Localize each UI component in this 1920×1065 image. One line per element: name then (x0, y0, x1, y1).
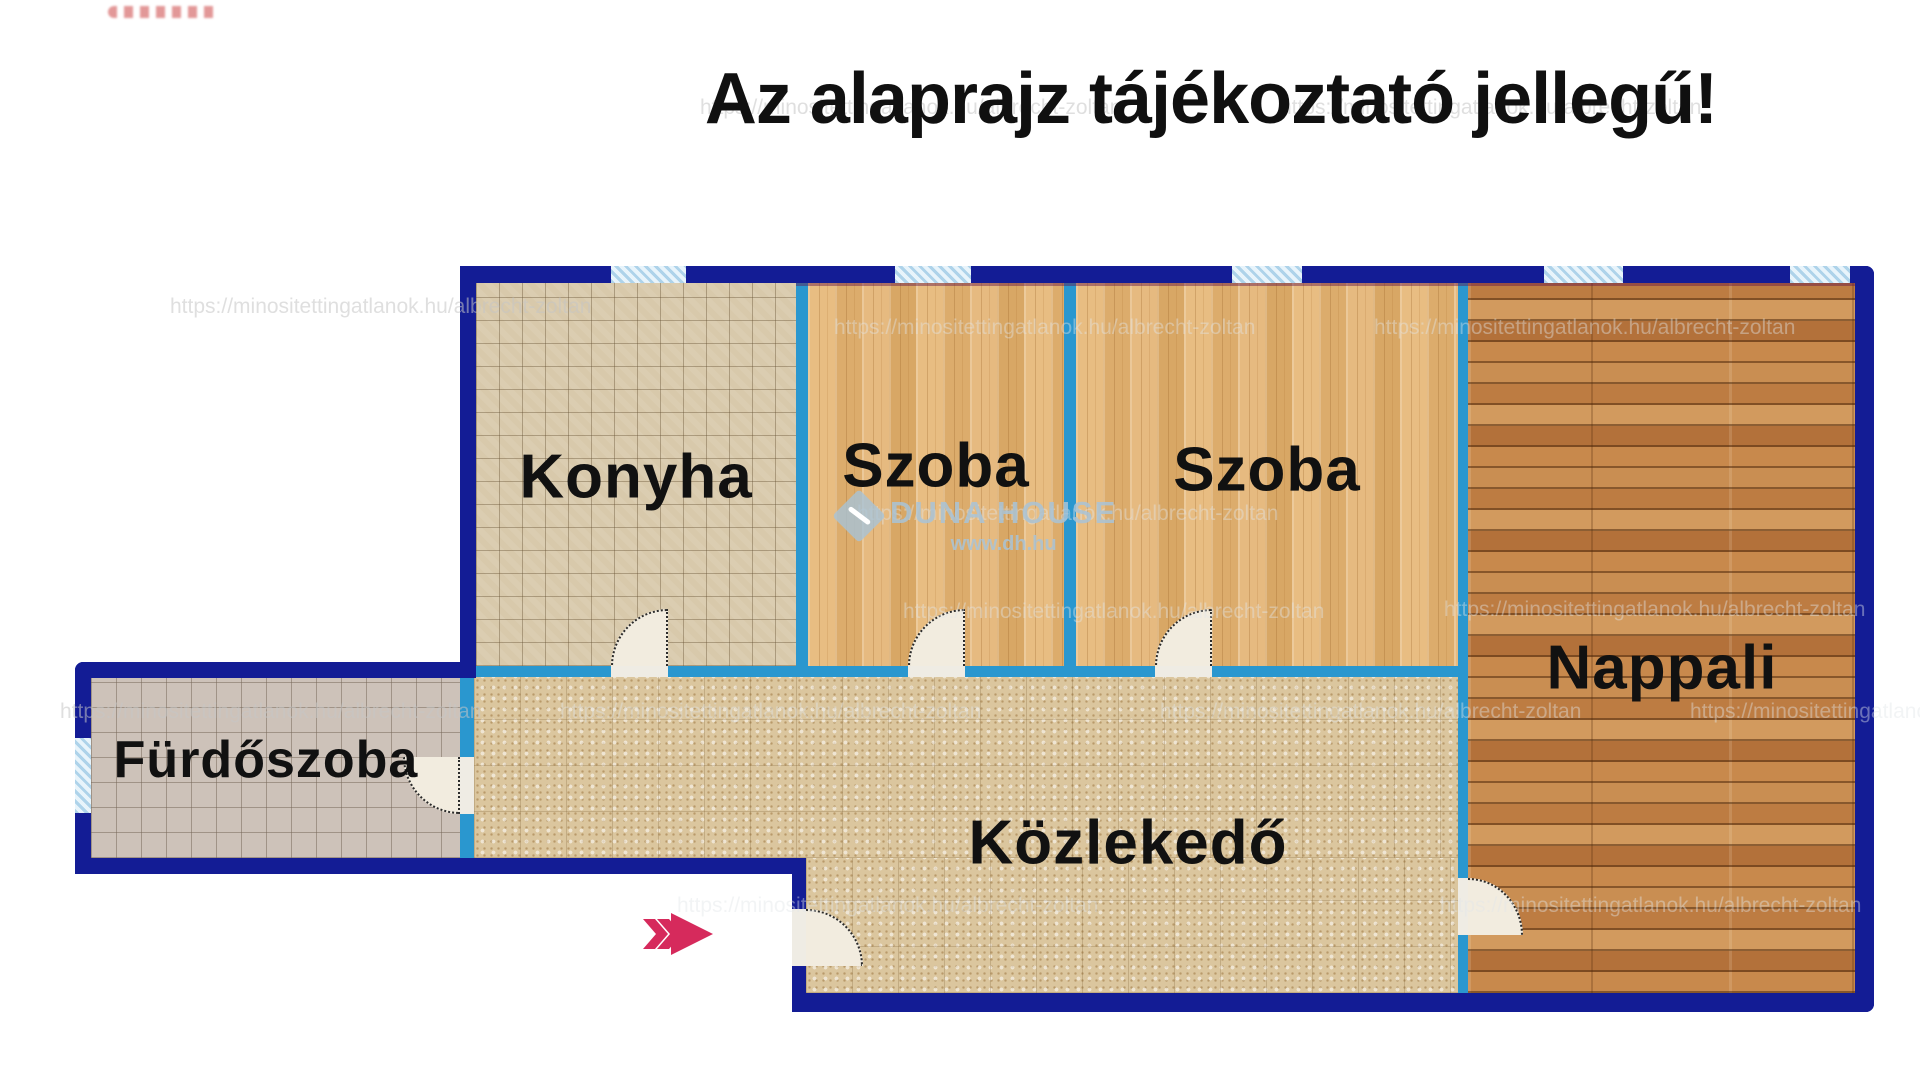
window-bathroom (75, 738, 91, 813)
page-title: Az alaprajz tájékoztató jellegű! (705, 58, 1717, 140)
wall-shadow-line (796, 283, 1855, 286)
room-label-kitchen: Konyha (519, 442, 752, 513)
window-room2 (1232, 266, 1302, 283)
window-kitchen (611, 266, 686, 283)
wall-bottom (792, 993, 1874, 1012)
wall-inner-kitchen-room1 (796, 283, 808, 666)
entrance-arrow-icon (641, 911, 715, 957)
wall-right (1855, 266, 1874, 1012)
wall-leftwing-bottom (75, 858, 806, 874)
door-gap-kitchen (611, 666, 668, 677)
wall-inner-room2-living (1458, 283, 1468, 666)
artifact-mark (108, 6, 218, 18)
room-label-hallway: Közlekedő (968, 808, 1287, 879)
floorplan-page: Az alaprajz tájékoztató jellegű! Konyha … (0, 0, 1920, 1065)
wall-leftwing-top (75, 662, 476, 678)
window-room1 (895, 266, 971, 283)
door-gap-room1 (908, 666, 965, 677)
room-label-room1: Szoba (842, 431, 1030, 502)
door-gap-entrance (792, 909, 806, 966)
window-living-1 (1544, 266, 1623, 283)
door-gap-bathroom (460, 757, 474, 814)
window-living-2 (1790, 266, 1850, 283)
room-floor-hallway-upper (474, 677, 1458, 858)
room-label-bathroom: Fürdőszoba (114, 730, 419, 790)
door-gap-room2 (1155, 666, 1212, 677)
wall-left-main (460, 266, 476, 678)
wall-inner-room1-room2 (1064, 283, 1076, 666)
door-gap-living (1458, 878, 1468, 935)
room-label-living: Nappali (1547, 633, 1778, 704)
room-label-room2: Szoba (1173, 435, 1361, 506)
wall-inner-living-hall (1458, 666, 1468, 993)
